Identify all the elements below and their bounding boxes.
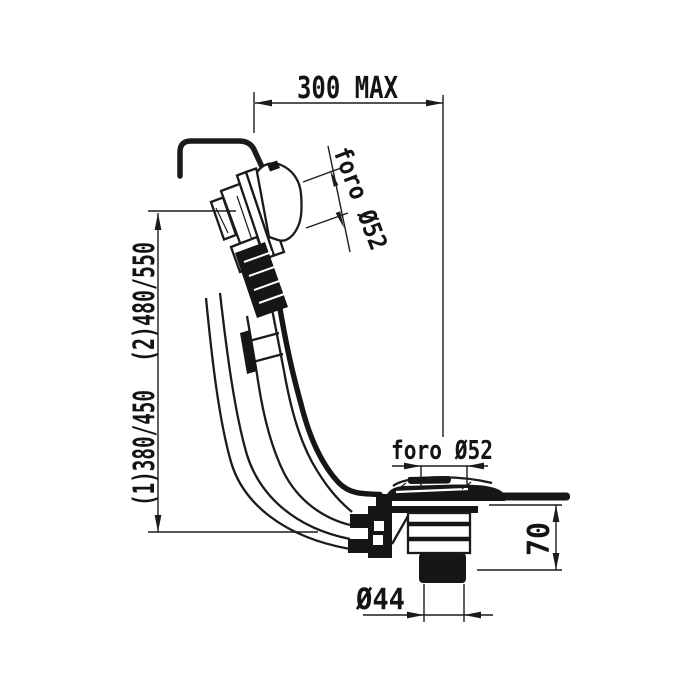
dim-label-overflow-hole: foro Ø52 <box>327 143 393 254</box>
overflow-tube <box>240 309 284 374</box>
technical-drawing-page: 300 MAX (2)480/550 (1)380/450 foro Ø52 f… <box>0 0 700 700</box>
dim-label-44: Ø44 <box>355 582 405 616</box>
pipe-stub-upper <box>350 514 370 528</box>
pipe-stub-lower <box>348 539 370 553</box>
dimension-44: Ø44 <box>355 582 493 622</box>
dimension-70: 70 <box>477 505 562 570</box>
threaded-tail <box>419 553 466 583</box>
dim-label-height-2: (2)480/550 <box>127 242 161 362</box>
tube-clip <box>240 330 257 374</box>
dim-label-height-1: (1)380/450 <box>127 390 161 506</box>
tub-rim-bar <box>470 493 570 501</box>
dim-label-300-max: 300 MAX <box>297 71 398 106</box>
control-cable <box>279 303 380 495</box>
bath-waste-overflow-drawing: 300 MAX (2)480/550 (1)380/450 foro Ø52 f… <box>0 0 700 700</box>
dimension-300-max: 300 MAX <box>254 71 443 437</box>
dim-label-70: 70 <box>522 522 557 556</box>
dimension-overflow-hole: foro Ø52 <box>303 143 393 254</box>
drain-body <box>408 513 470 553</box>
dim-label-drain-hole: foro Ø52 <box>391 436 493 466</box>
flexible-waste-pipe <box>206 293 352 549</box>
compression-nut <box>368 506 392 558</box>
